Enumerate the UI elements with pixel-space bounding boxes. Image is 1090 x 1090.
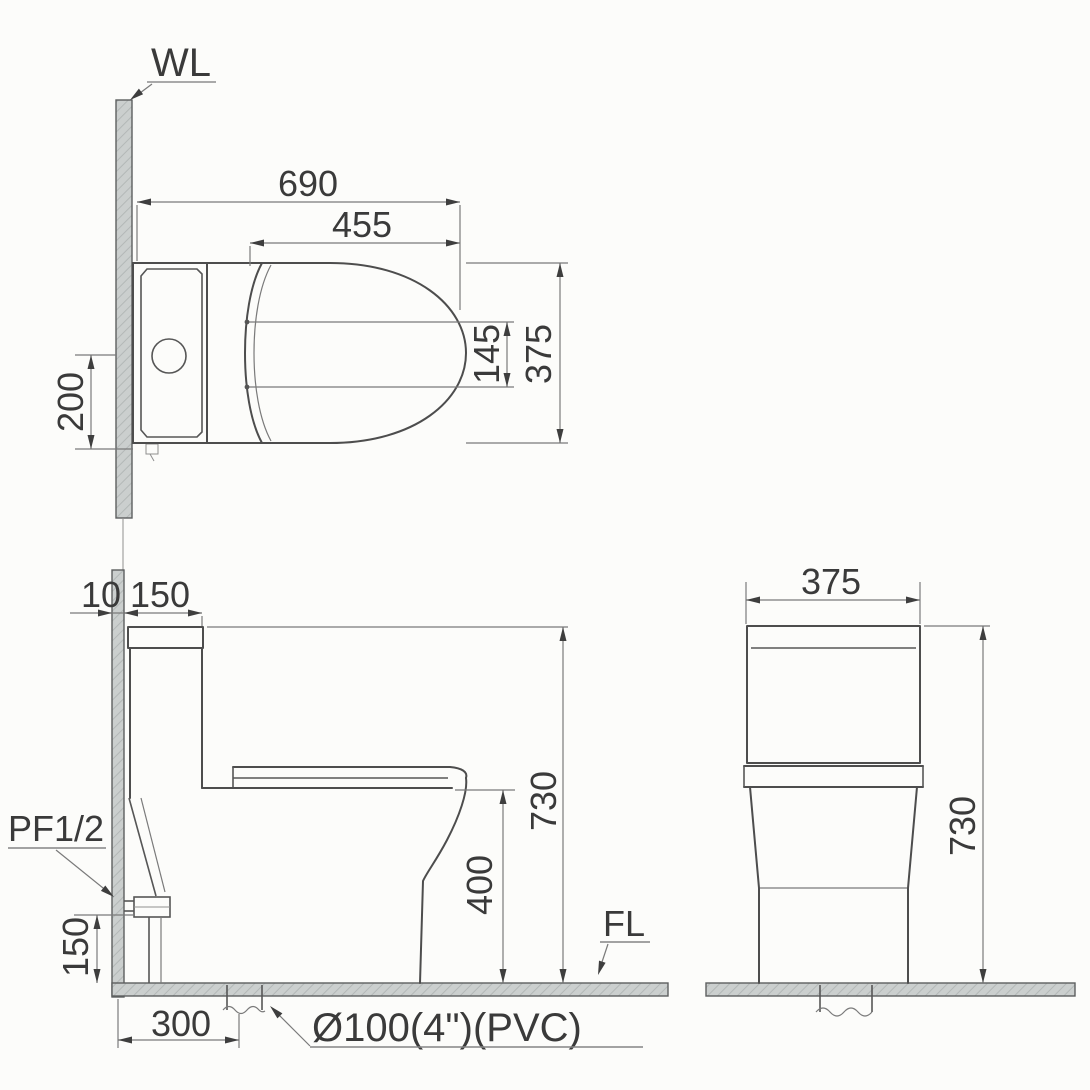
seat-side [233,767,466,788]
hinge-clip-detail [146,444,158,461]
dim-seat-length: 455 [250,204,460,266]
drawing-page: WL 690 [0,0,1090,1090]
hinge-point-upper [245,320,250,325]
dim-wall-and-tank-depth: 10 150 [70,574,202,626]
floor-line-leader-arrow [598,961,606,975]
dim-front-width: 375 [746,561,920,624]
dim-150-supply-label: 150 [55,917,96,977]
tank-cap-side [128,627,203,648]
seat-front-view [744,766,923,787]
dim-455-label: 455 [332,204,392,245]
wall-section-side-view [112,570,124,997]
tank-front-view [747,626,920,763]
wall-line-callout: WL [130,41,216,100]
dim-300-label: 300 [151,1003,211,1044]
dim-drain-set-out: 300 [118,999,239,1048]
dim-10-label: 10 [81,574,121,615]
flush-button [152,339,186,373]
dim-400-label: 400 [459,855,500,915]
dim-730-front-label: 730 [942,796,983,856]
dim-145-label: 145 [466,324,507,384]
floor-line-label: FL [603,903,645,944]
wall-section-top-view [116,100,132,518]
wall-line-leader-arrow [130,89,143,100]
technical-drawing: WL 690 [0,0,1090,1090]
supply-valve [124,897,170,917]
supply-callout: PF1/2 [8,808,114,897]
drain-label: Ø100(4")(PVC) [312,1006,582,1050]
floor-line-callout: FL [598,903,650,975]
wall-line-label: WL [151,41,211,85]
hinge-point-lower [245,385,250,390]
bowl-taper-left [750,787,759,888]
dim-200-label: 200 [50,372,91,432]
side-view: 10 150 730 400 150 [8,570,668,1050]
dim-overall-height-side: 730 [207,627,568,983]
top-view: WL 690 [50,41,568,570]
supply-label: PF1/2 [8,808,104,849]
tank-base-taper-outer [129,798,156,896]
dim-730-side-label: 730 [523,771,564,831]
dim-hinge-spacing: 145 [466,322,511,387]
tank-outline-top [133,263,207,443]
floor-section-side-view [112,983,668,996]
tank-base-taper-inner [141,798,165,892]
seat-cover-inner-arc [254,265,271,441]
dim-overall-length: 690 [137,163,460,310]
dim-690-label: 690 [278,163,338,204]
dim-bowl-height: 400 [455,790,515,983]
dim-150-tank-label: 150 [130,574,190,615]
seat-cover-outline [245,263,466,443]
bowl-taper-right [908,787,917,888]
dim-front-height: 730 [924,626,990,983]
tank-lid-top [141,269,202,437]
floor-section-front-view [706,983,1075,996]
dim-375-top-label: 375 [518,324,559,384]
front-view: 375 730 [706,561,1075,1016]
dim-375-front-label: 375 [801,561,861,602]
drain-callout: Ø100(4")(PVC) [270,1006,643,1050]
